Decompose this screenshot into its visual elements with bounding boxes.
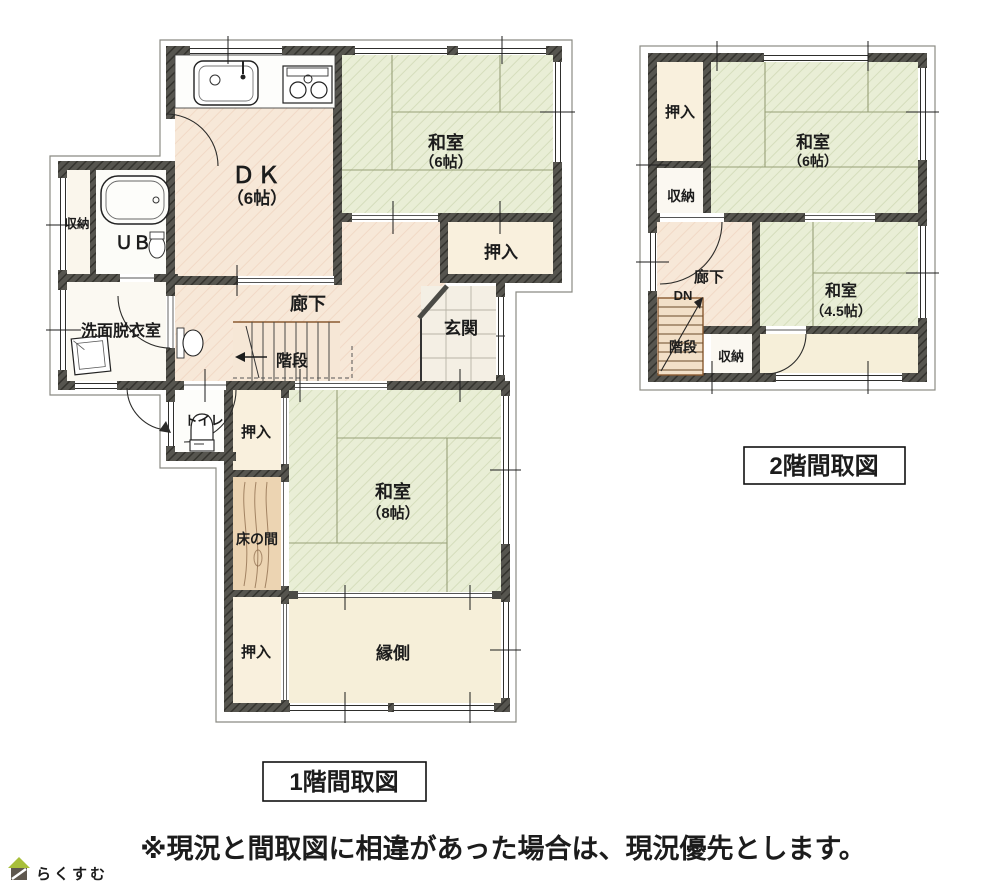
hall-washbasin-icon xyxy=(177,328,203,358)
room-strip-f2-floor xyxy=(760,334,918,373)
kitchen-counter xyxy=(175,55,335,108)
label-toilet: トイレ xyxy=(184,413,223,428)
floor2-plan: 押入 和室 （6帖） 収納 廊下 DN 階段 収納 和室 （4.5帖） xyxy=(636,41,939,394)
floor1-plan: ＤＫ （6帖） 和室 （6帖） 押入 廊下 階段 玄関 ＵＢ 収納 洗面脱衣室 … xyxy=(46,36,575,723)
bathtub-icon xyxy=(101,176,169,224)
washing-machine-icon xyxy=(71,335,111,375)
label-dn: DN xyxy=(674,288,693,303)
label-kaidan-f1: 階段 xyxy=(276,351,309,370)
site-logo-text: らくすむ xyxy=(36,866,108,883)
house-logo-icon xyxy=(8,857,30,880)
label-washitsu8-size: （8帖） xyxy=(366,504,419,522)
label-washitsu45-size: （4.5帖） xyxy=(810,303,871,319)
site-logo: らくすむ xyxy=(8,857,108,883)
label-shunou-n-f2: 収納 xyxy=(667,188,695,204)
label-senmen: 洗面脱衣室 xyxy=(81,321,161,340)
label-engawa: 縁側 xyxy=(376,643,410,663)
label-shunou-west: 収納 xyxy=(64,216,89,231)
label-ub: ＵＢ xyxy=(115,233,151,253)
label-tokonoma: 床の間 xyxy=(236,531,278,547)
label-washitsu45: 和室 xyxy=(825,281,857,300)
floor2-caption: 2階間取図 xyxy=(769,453,878,480)
floor1-caption: 1階間取図 xyxy=(289,769,398,796)
floorplan-page: ＤＫ （6帖） 和室 （6帖） 押入 廊下 階段 玄関 ＵＢ 収納 洗面脱衣室 … xyxy=(0,0,993,889)
label-dk-size: （6帖） xyxy=(227,188,287,208)
label-dk: ＤＫ xyxy=(232,162,282,188)
stove-icon xyxy=(283,66,332,103)
floorplan-drawing: ＤＫ （6帖） 和室 （6帖） 押入 廊下 階段 玄関 ＵＢ 収納 洗面脱衣室 … xyxy=(0,0,993,889)
label-shunou-s-f2: 収納 xyxy=(718,349,744,364)
label-rouka-f2: 廊下 xyxy=(694,268,724,286)
disclaimer-note: ※現況と間取図に相違があった場合は、現況優先とします。 xyxy=(140,833,866,864)
stairs-f2 xyxy=(658,297,703,375)
kitchen-sink-icon xyxy=(194,61,258,105)
label-genkan: 玄関 xyxy=(444,318,478,338)
label-rouka-f1: 廊下 xyxy=(290,293,326,314)
label-washitsu6-f2: 和室 xyxy=(796,132,830,152)
label-oshiire-f2: 押入 xyxy=(665,103,695,121)
label-kaidan-f2: 階段 xyxy=(669,339,697,355)
label-washitsu6-f1: 和室 xyxy=(428,132,464,153)
ub-basin-icon xyxy=(149,232,165,258)
floor1-caption-box: 1階間取図 xyxy=(263,762,426,801)
label-washitsu6-f1-size: （6帖） xyxy=(419,153,472,171)
label-oshiire-n: 押入 xyxy=(241,423,271,441)
label-oshiire-east: 押入 xyxy=(484,242,518,262)
stairs-f1-area xyxy=(233,322,340,381)
label-washitsu6-f2-size: （6帖） xyxy=(788,153,838,169)
label-washitsu8: 和室 xyxy=(375,481,411,502)
label-oshiire-s: 押入 xyxy=(241,643,271,661)
floor2-caption-box: 2階間取図 xyxy=(744,447,905,484)
